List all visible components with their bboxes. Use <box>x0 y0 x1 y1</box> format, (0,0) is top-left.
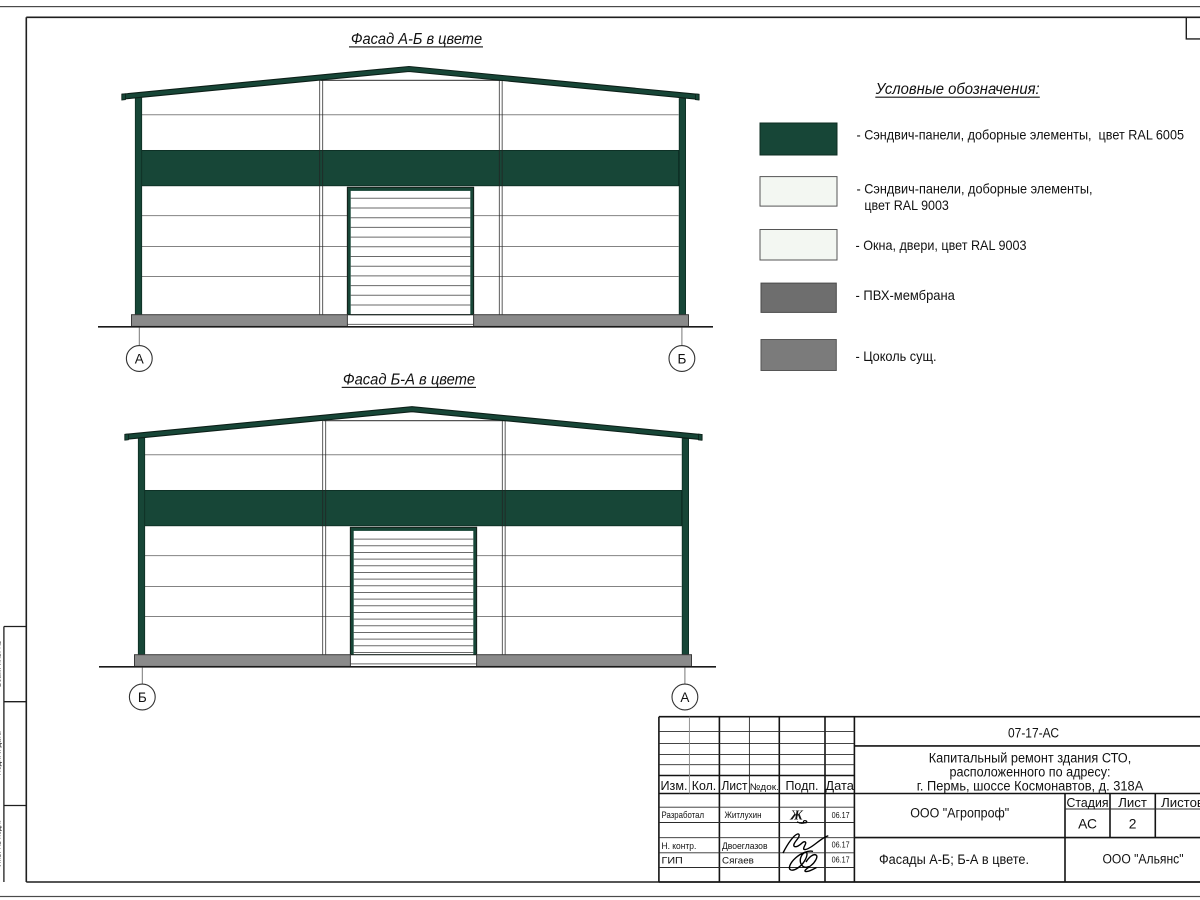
svg-text:Лист: Лист <box>1118 795 1147 810</box>
svg-text:Лист: Лист <box>722 779 748 793</box>
svg-text:Условные обозначения:: Условные обозначения: <box>875 81 1040 98</box>
svg-text:Б: Б <box>138 690 147 705</box>
svg-text:Разработал: Разработал <box>662 810 705 820</box>
svg-text:г. Пермь, шоссе Космонавтов, д: г. Пермь, шоссе Космонавтов, д. 318А <box>917 778 1144 793</box>
svg-text:06.17: 06.17 <box>832 840 850 850</box>
svg-text:А: А <box>135 351 144 366</box>
svg-text:Кол.: Кол. <box>692 779 717 793</box>
svg-text:Дата: Дата <box>825 779 854 793</box>
svg-text:Подп. и дата: Подп. и дата <box>0 731 2 776</box>
svg-text:ООО "Агропроф": ООО "Агропроф" <box>910 806 1009 821</box>
svg-text:Сягаев: Сягаев <box>722 856 754 866</box>
svg-text:Н. контр.: Н. контр. <box>662 841 697 851</box>
svg-text:07-17-АС: 07-17-АС <box>1008 726 1059 741</box>
svg-text:Ж: Ж <box>790 808 804 823</box>
svg-text:Взам. инв. №: Взам. инв. № <box>0 641 2 687</box>
svg-text:Изм.: Изм. <box>661 779 688 793</box>
svg-text:АС: АС <box>1078 816 1097 831</box>
svg-text:Фасад А-Б в цвете: Фасад А-Б в цвете <box>351 31 483 48</box>
svg-text:Б: Б <box>677 351 686 366</box>
svg-text:ГИП: ГИП <box>662 856 683 866</box>
svg-text:- ПВХ-мембрана: - ПВХ-мембрана <box>856 288 956 303</box>
svg-text:Подп.: Подп. <box>786 779 819 793</box>
svg-text:расположенного по адресу:: расположенного по адресу: <box>950 765 1111 780</box>
svg-text:ООО "Альянс": ООО "Альянс" <box>1103 852 1184 867</box>
svg-text:- Сэндвич-панели, доборные эле: - Сэндвич-панели, доборные элементы, <box>857 181 1093 196</box>
svg-text:- Сэндвич-панели, доборные эле: - Сэндвич-панели, доборные элементы, цве… <box>857 127 1185 142</box>
svg-text:А: А <box>680 690 689 705</box>
svg-text:Фасад Б-А в цвете: Фасад Б-А в цвете <box>343 371 476 388</box>
svg-text:Фасады А-Б; Б-А в цвете.: Фасады А-Б; Б-А в цвете. <box>879 852 1029 867</box>
svg-text:- Цоколь сущ.: - Цоколь сущ. <box>856 349 937 364</box>
svg-text:2: 2 <box>1129 816 1137 831</box>
svg-text:06.17: 06.17 <box>832 810 850 820</box>
svg-text:06.17: 06.17 <box>832 854 850 864</box>
svg-text:- Окна, двери, цвет RAL 9003: - Окна, двери, цвет RAL 9003 <box>856 238 1027 253</box>
svg-text:цвет RAL 9003: цвет RAL 9003 <box>864 198 949 213</box>
svg-text:Инв. № подл.: Инв. № подл. <box>0 820 2 867</box>
svg-text:Двоеглазов: Двоеглазов <box>722 841 768 851</box>
svg-text:Житлухин: Житлухин <box>725 810 762 820</box>
svg-text:Стадия: Стадия <box>1067 795 1109 810</box>
svg-text:Капитальный ремонт здания СТО,: Капитальный ремонт здания СТО, <box>929 751 1132 766</box>
svg-text:Листов: Листов <box>1161 795 1200 810</box>
svg-text:№док.: №док. <box>750 782 779 793</box>
